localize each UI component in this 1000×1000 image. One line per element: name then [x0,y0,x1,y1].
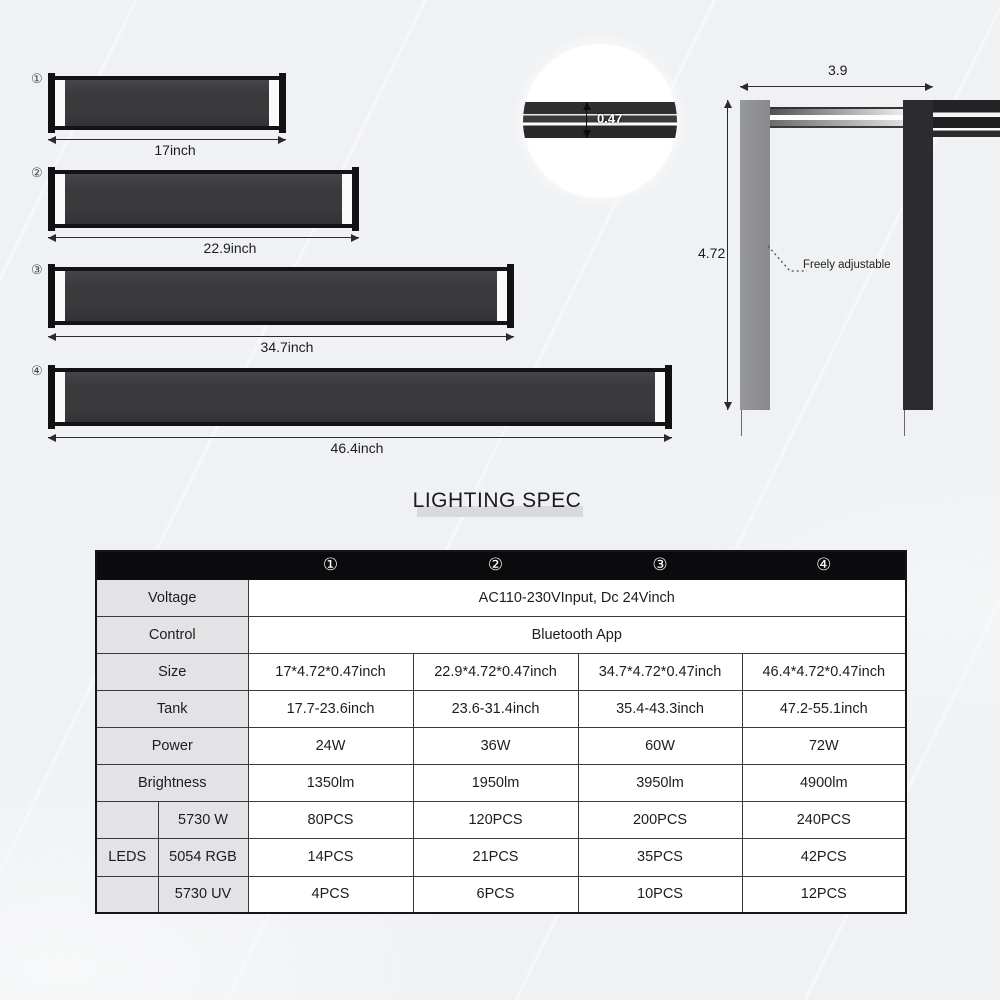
row-label-5730w: 5730 W [158,801,248,838]
tank-value-3: 35.4-43.3inch [578,690,742,727]
bar-end-cap-right [269,80,279,126]
brightness-value-2: 1950lm [413,764,578,801]
tank-value-1: 17.7-23.6inch [248,690,413,727]
dimension-arrow-bar-1 [48,139,286,140]
circled-4-icon: ④ [31,364,43,378]
bar-body [65,80,269,126]
height-dimension-label: 4.72 [698,245,725,261]
col-header-4: ④ [742,551,906,579]
dimension-arrow-bar-3 [48,336,514,337]
thickness-value: 0.47 [597,111,622,126]
width-dimension-label: 3.9 [828,62,847,78]
voltage-value: AC110-230VInput, Dc 24Vinch [248,579,906,616]
leds-group-cell-bottom [96,876,158,913]
bar-end-cap-right [342,174,352,224]
circled-1-icon: ① [31,72,43,86]
table-row-brightness: Brightness 1350lm 1950lm 3950lm 4900lm [96,764,906,801]
bar-frame-bottom [55,321,507,325]
dimension-arrow-bar-2 [48,237,359,238]
size-value-4: 46.4*4.72*0.47inch [742,653,906,690]
bar-frame-bottom [55,224,352,228]
col-header-2: ② [413,551,578,579]
tank-value-2: 23.6-31.4inch [413,690,578,727]
circled-3-icon: ③ [31,263,43,277]
thickness-detail-circle: 0.47 [523,44,677,198]
bar-post-right [279,73,286,133]
leds-5730uv-value-2: 6PCS [413,876,578,913]
light-fixture-side-profile [770,107,903,128]
bar-post-left [48,167,55,231]
leds-5730uv-value-4: 12PCS [742,876,906,913]
table-row-size: Size 17*4.72*0.47inch 22.9*4.72*0.47inch… [96,653,906,690]
bar-frame-bottom [55,422,665,426]
table-header-row: ① ② ③ ④ [96,551,906,579]
light-bar-size-2: ② [48,170,359,228]
thickness-arrow [586,102,587,138]
leds-5730uv-value-3: 10PCS [578,876,742,913]
width-dimension-arrow [740,86,933,87]
power-value-4: 72W [742,727,906,764]
dimension-label-bar-4: 46.4inch [331,440,384,456]
table-row-leds-5730w: 5730 W 80PCS 120PCS 200PCS 240PCS [96,801,906,838]
dimension-label-bar-2: 22.9inch [204,240,257,256]
brightness-value-1: 1350lm [248,764,413,801]
size-value-2: 22.9*4.72*0.47inch [413,653,578,690]
leds-5730w-value-4: 240PCS [742,801,906,838]
bar-body [65,271,497,321]
dimension-label-bar-1: 17inch [154,142,195,158]
table-row-voltage: Voltage AC110-230VInput, Dc 24Vinch [96,579,906,616]
bar-end-cap-left [55,372,65,422]
col-header-1: ① [248,551,413,579]
bar-end-cap-left [55,271,65,321]
second-fixture-cross-section [933,100,1000,137]
leds-group-label: LEDS [96,838,158,876]
leds-5054rgb-value-2: 21PCS [413,838,578,876]
row-label-5730uv: 5730 UV [158,876,248,913]
row-label-size: Size [96,653,248,690]
freely-adjustable-note: Freely adjustable [803,259,891,271]
table-row-control: Control Bluetooth App [96,616,906,653]
spec-table: ① ② ③ ④ Voltage AC110-230VInput, Dc 24Vi… [95,550,907,914]
leds-5730w-value-1: 80PCS [248,801,413,838]
leds-5054rgb-value-1: 14PCS [248,838,413,876]
control-value: Bluetooth App [248,616,906,653]
bar-end-cap-left [55,80,65,126]
bar-post-right [665,365,672,429]
table-row-tank: Tank 17.7-23.6inch 23.6-31.4inch 35.4-43… [96,690,906,727]
circled-2-icon: ② [31,166,43,180]
col-header-3: ③ [578,551,742,579]
light-bar-size-3: ③ [48,267,514,325]
leds-5730w-value-2: 120PCS [413,801,578,838]
bar-end-cap-right [497,271,507,321]
bar-end-cap-right [655,372,665,422]
product-spec-sheet: ① 17inch ② 22.9inch ③ 34.7inch ④ [0,0,1000,1000]
leds-5730w-value-3: 200PCS [578,801,742,838]
power-value-3: 60W [578,727,742,764]
row-label-control: Control [96,616,248,653]
table-row-power: Power 24W 36W 60W 72W [96,727,906,764]
fixed-bracket-leg [903,100,933,410]
light-bar-size-1: ① [48,76,286,130]
bar-body [65,372,655,422]
bar-body [65,174,342,224]
row-label-power: Power [96,727,248,764]
row-label-5054rgb: 5054 RGB [158,838,248,876]
tank-value-4: 47.2-55.1inch [742,690,906,727]
tank-glass-line-right [904,410,905,436]
bar-frame-bottom [55,126,279,130]
page-title: LIGHTING SPEC [413,489,582,513]
tank-glass-line-left [741,410,742,436]
size-value-1: 17*4.72*0.47inch [248,653,413,690]
row-label-brightness: Brightness [96,764,248,801]
power-value-2: 36W [413,727,578,764]
bar-end-cap-left [55,174,65,224]
dimension-label-bar-3: 34.7inch [261,339,314,355]
size-value-3: 34.7*4.72*0.47inch [578,653,742,690]
leds-5730uv-value-1: 4PCS [248,876,413,913]
header-empty-cell [96,551,248,579]
side-view-diagram: 3.9 4.72 Freely adjustable [690,40,1000,440]
bar-post-left [48,365,55,429]
bar-post-right [507,264,514,328]
bar-post-left [48,264,55,328]
row-label-tank: Tank [96,690,248,727]
row-label-voltage: Voltage [96,579,248,616]
light-bar-size-4: ④ [48,368,672,426]
table-row-leds-5730uv: 5730 UV 4PCS 6PCS 10PCS 12PCS [96,876,906,913]
leds-5054rgb-value-3: 35PCS [578,838,742,876]
power-value-1: 24W [248,727,413,764]
table-row-leds-5054rgb: LEDS 5054 RGB 14PCS 21PCS 35PCS 42PCS [96,838,906,876]
bar-post-right [352,167,359,231]
leds-group-cell-top [96,801,158,838]
height-dimension-arrow [727,100,728,410]
brightness-value-4: 4900lm [742,764,906,801]
bar-post-left [48,73,55,133]
leds-5054rgb-value-4: 42PCS [742,838,906,876]
dimension-arrow-bar-4 [48,437,672,438]
brightness-value-3: 3950lm [578,764,742,801]
